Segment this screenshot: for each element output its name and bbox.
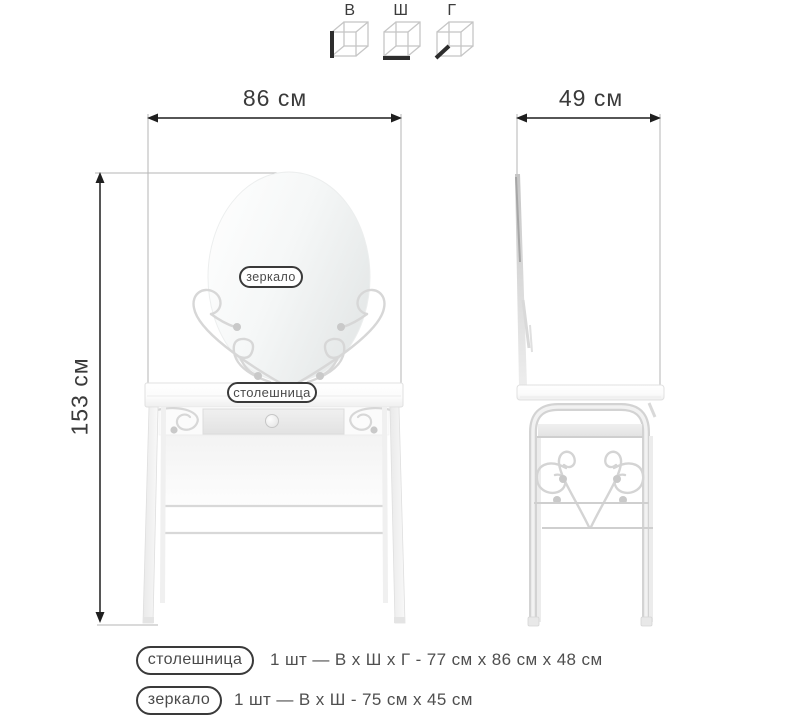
extension-lines: [95, 114, 660, 625]
diagram-line-art: [0, 0, 800, 724]
tabletop-side: [517, 385, 664, 400]
back-panel: [164, 435, 384, 506]
side-inner-leg-left: [537, 436, 541, 622]
spec-tabletop-details: 1 шт — В х Ш х Г - 77 см х 86 см х 48 см: [270, 650, 603, 670]
drawer-knob: [266, 415, 279, 428]
front-leg-right: [390, 407, 405, 623]
side-depth-dimension-label: 49 см: [516, 85, 666, 112]
spec-tabletop-tag-pill: столешница: [136, 646, 254, 675]
side-scroll-ornament: [537, 452, 643, 527]
legend-label-width: Ш: [388, 2, 414, 20]
spec-row-mirror: зеркало 1 шт — В х Ш - 75 см х 45 см: [136, 685, 473, 715]
front-height-arrow: [96, 172, 105, 623]
spec-row-tabletop: столешница 1 шт — В х Ш х Г - 77 см х 86…: [136, 645, 603, 675]
side-frame-arch: [533, 407, 646, 624]
tabletop-tag-pill: столешница: [227, 382, 317, 403]
product-dimension-diagram: В Ш Г 86 см 49 см 153 см зеркало столешн…: [0, 0, 800, 724]
cube-width-edge-icon: [383, 22, 420, 58]
legend-label-depth: Г: [439, 2, 465, 20]
side-depth-arrow: [516, 114, 661, 123]
front-leg-left: [143, 407, 158, 623]
front-width-dimension-label: 86 см: [200, 85, 350, 112]
side-view: [515, 174, 664, 626]
cube-depth-edge-icon: [436, 22, 473, 58]
cube-height-edge-icon: [332, 22, 368, 58]
spec-mirror-details: 1 шт — В х Ш - 75 см х 45 см: [234, 690, 473, 710]
spec-mirror-tag-pill: зеркало: [136, 686, 222, 715]
front-height-dimension-label: 153 см: [67, 337, 94, 457]
back-leg-left: [160, 407, 166, 603]
mirror-tag-pill: зеркало: [239, 266, 303, 288]
back-leg-right: [382, 407, 388, 603]
front-width-arrow: [147, 114, 402, 123]
legend-label-height: В: [337, 2, 363, 20]
